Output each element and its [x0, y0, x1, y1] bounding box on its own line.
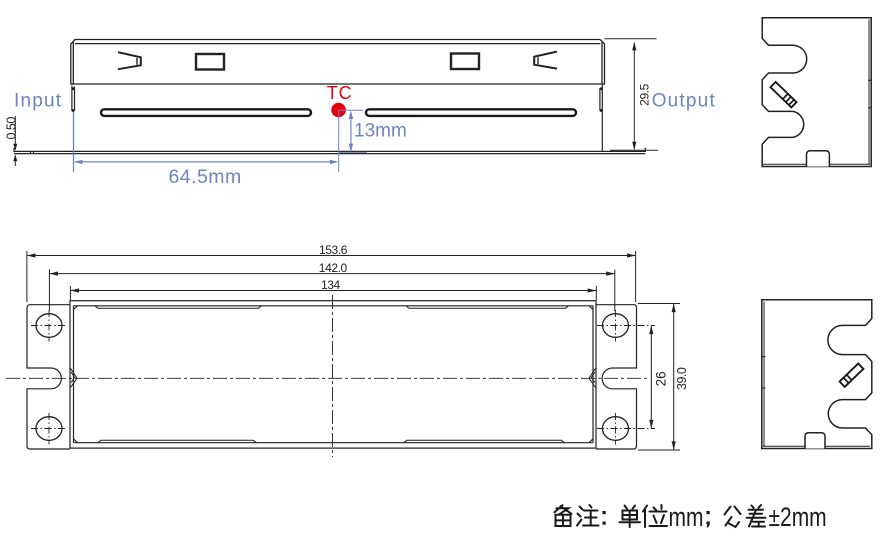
- svg-text:0.50: 0.50: [5, 117, 19, 140]
- svg-text:134: 134: [321, 278, 341, 292]
- svg-text:39.0: 39.0: [675, 367, 689, 390]
- svg-text:Output: Output: [652, 90, 716, 111]
- svg-text:142.0: 142.0: [319, 261, 348, 275]
- svg-text:64.5mm: 64.5mm: [169, 166, 242, 188]
- svg-text:±2mm: ±2mm: [769, 503, 827, 533]
- svg-text:TC: TC: [327, 83, 353, 103]
- svg-text:153.6: 153.6: [319, 243, 348, 257]
- svg-text:13mm: 13mm: [354, 121, 407, 142]
- svg-text:Input: Input: [14, 90, 62, 111]
- svg-text:26: 26: [654, 371, 669, 386]
- svg-text:mm: mm: [669, 503, 704, 533]
- svg-text:29.5: 29.5: [638, 83, 652, 105]
